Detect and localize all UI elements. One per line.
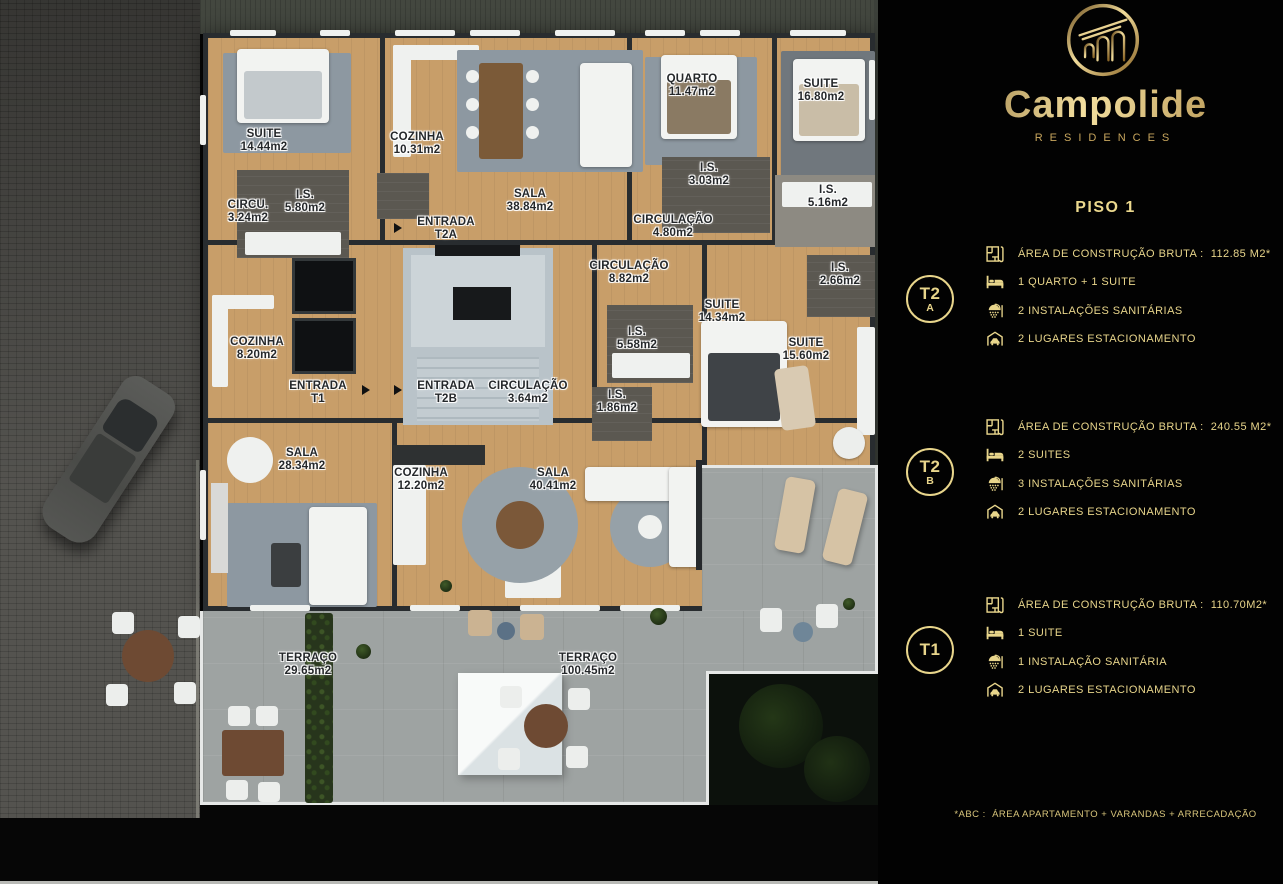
unit-t2b: T2 B ÁREA DE CONSTRUÇÃO BRUTA : 240.55 M… (878, 417, 1283, 530)
room-label: TERRAÇO100.45m2 (559, 652, 617, 678)
bedrooms-row: 1 SUITE (985, 623, 1283, 643)
bedrooms-text: 2 SUITES (1018, 449, 1071, 461)
room-label: I.S.5.80m2 (285, 189, 325, 215)
room-label: SUITE15.60m2 (783, 337, 830, 363)
shower-icon (985, 474, 1005, 494)
bedrooms-text: 1 QUARTO + 1 SUITE (1018, 276, 1136, 288)
unit-t1: T1 ÁREA DE CONSTRUÇÃO BRUTA : 110.70M2* … (878, 595, 1283, 708)
badge-text: B (926, 476, 934, 487)
bedrooms-text: 1 SUITE (1018, 627, 1063, 639)
garage-icon (985, 680, 1005, 700)
area-text: ÁREA DE CONSTRUÇÃO BRUTA : 240.55 M2* (1018, 421, 1271, 433)
room-label: I.S.1.86m2 (597, 389, 637, 415)
parking-row: 2 LUGARES ESTACIONAMENTO (985, 680, 1283, 700)
bathrooms-text: 1 INSTALAÇÃO SANITÁRIA (1018, 656, 1167, 668)
room-label: COZINHA10.31m2 (390, 131, 444, 157)
bedrooms-row: 2 SUITES (985, 445, 1283, 465)
garage-icon (985, 329, 1005, 349)
room-label: ENTRADAT1 (289, 380, 347, 406)
info-panel: Campolide RESIDENCES PISO 1 T2 A ÁREA DE… (878, 0, 1283, 884)
room-label: I.S.5.16m2 (808, 184, 848, 210)
room-label: ENTRADAT2B (417, 380, 475, 406)
bedrooms-row: 1 QUARTO + 1 SUITE (985, 272, 1283, 292)
room-label: I.S.3.03m2 (689, 162, 729, 188)
area-row: ÁREA DE CONSTRUÇÃO BRUTA : 240.55 M2* (985, 417, 1283, 437)
room-label: CIRCULAÇÃO4.80m2 (633, 214, 712, 240)
shower-icon (985, 301, 1005, 321)
area-row: ÁREA DE CONSTRUÇÃO BRUTA : 110.70M2* (985, 595, 1283, 615)
campolide-logo-icon (1064, 1, 1142, 79)
room-label: SUITE14.44m2 (241, 128, 288, 154)
room-label: CIRCU.3.24m2 (228, 199, 269, 225)
floorplan-icon (985, 417, 1005, 437)
room-label: I.S.5.58m2 (617, 326, 657, 352)
bathrooms-row: 1 INSTALAÇÃO SANITÁRIA (985, 652, 1283, 672)
bathrooms-text: 3 INSTALAÇÕES SANITÁRIAS (1018, 478, 1183, 490)
shower-icon (985, 652, 1005, 672)
room-label: TERRAÇO29.65m2 (279, 652, 337, 678)
room-label: SALA38.84m2 (507, 188, 554, 214)
floor-title: PISO 1 (903, 199, 1283, 217)
area-text: ÁREA DE CONSTRUÇÃO BRUTA : 112.85 M2* (1018, 248, 1271, 260)
room-label: ENTRADAT2A (417, 216, 475, 242)
floorplan-sheet: SUITE14.44m2COZINHA10.31m2QUARTO11.47m2S… (0, 0, 1283, 884)
room-label: CIRCULAÇÃO3.64m2 (488, 380, 567, 406)
room-label: SUITE14.34m2 (699, 299, 746, 325)
bathrooms-text: 2 INSTALAÇÕES SANITÁRIAS (1018, 305, 1183, 317)
room-label: SUITE16.80m2 (798, 78, 845, 104)
badge-text: T2 (920, 285, 941, 302)
bed-icon (985, 445, 1005, 465)
badge-text: A (926, 303, 934, 314)
parking-row: 2 LUGARES ESTACIONAMENTO (985, 329, 1283, 349)
bed-icon (985, 623, 1005, 643)
unit-t2a: T2 A ÁREA DE CONSTRUÇÃO BRUTA : 112.85 M… (878, 244, 1283, 357)
room-label: COZINHA8.20m2 (230, 336, 284, 362)
room-label: CIRCULAÇÃO8.82m2 (589, 260, 668, 286)
parking-row: 2 LUGARES ESTACIONAMENTO (985, 502, 1283, 522)
room-label: SALA28.34m2 (279, 447, 326, 473)
room-label: COZINHA12.20m2 (394, 467, 448, 493)
room-label: I.S.2.66m2 (820, 262, 860, 288)
abc-footnote: *ABC : ÁREA APARTAMENTO + VARANDAS + ARR… (903, 809, 1283, 820)
parking-text: 2 LUGARES ESTACIONAMENTO (1018, 506, 1196, 518)
room-label-layer: SUITE14.44m2COZINHA10.31m2QUARTO11.47m2S… (0, 0, 878, 884)
parking-text: 2 LUGARES ESTACIONAMENTO (1018, 684, 1196, 696)
room-label: SALA40.41m2 (530, 467, 577, 493)
area-text: ÁREA DE CONSTRUÇÃO BRUTA : 110.70M2* (1018, 599, 1267, 611)
area-row: ÁREA DE CONSTRUÇÃO BRUTA : 112.85 M2* (985, 244, 1283, 264)
parking-text: 2 LUGARES ESTACIONAMENTO (1018, 333, 1196, 345)
unit-badge-t1: T1 (906, 626, 954, 674)
floorplan-icon (985, 244, 1005, 264)
unit-badge-t2a: T2 A (906, 275, 954, 323)
bed-icon (985, 272, 1005, 292)
room-label: QUARTO11.47m2 (667, 73, 718, 99)
bathrooms-row: 3 INSTALAÇÕES SANITÁRIAS (985, 474, 1283, 494)
floorplan-icon (985, 595, 1005, 615)
garage-icon (985, 502, 1005, 522)
badge-text: T2 (920, 458, 941, 475)
bathrooms-row: 2 INSTALAÇÕES SANITÁRIAS (985, 301, 1283, 321)
brand-subtitle: RESIDENCES (903, 132, 1283, 144)
badge-text: T1 (920, 641, 941, 658)
unit-badge-t2b: T2 B (906, 448, 954, 496)
brand-wordmark: Campolide (903, 84, 1283, 127)
